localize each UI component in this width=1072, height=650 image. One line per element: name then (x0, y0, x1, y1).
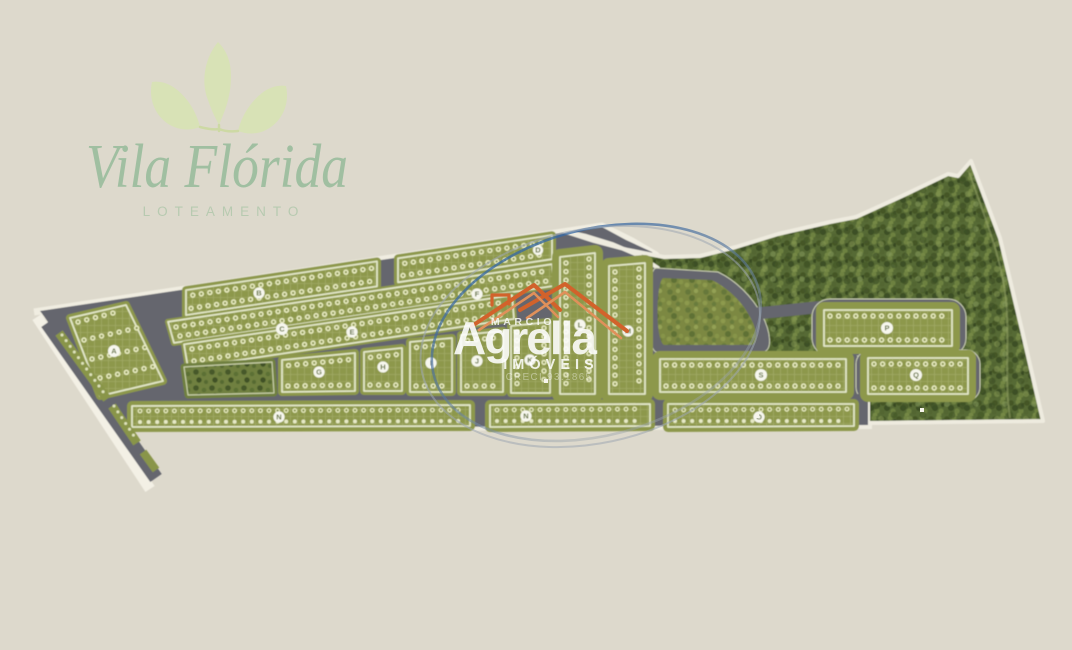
svg-text:A: A (111, 347, 117, 356)
svg-text:N: N (276, 413, 281, 422)
svg-text:F: F (475, 290, 480, 299)
svg-text:E: E (349, 328, 354, 337)
svg-text:S: S (758, 371, 763, 380)
svg-text:H: H (380, 363, 385, 372)
svg-text:LOTEAMENTO: LOTEAMENTO (143, 204, 306, 219)
svg-text:D: D (535, 246, 541, 255)
svg-text:IMÓVEIS: IMÓVEIS (503, 355, 598, 373)
svg-text:Vila Flórida: Vila Flórida (86, 133, 348, 201)
svg-text:G: G (316, 368, 322, 377)
svg-text:Q: Q (913, 371, 919, 380)
svg-text:B: B (256, 289, 262, 298)
svg-text:N: N (523, 412, 528, 421)
svg-text:P: P (884, 324, 889, 333)
svg-text:C: C (279, 325, 285, 334)
svg-text:CRECI 93.1865: CRECI 93.1865 (506, 372, 593, 383)
